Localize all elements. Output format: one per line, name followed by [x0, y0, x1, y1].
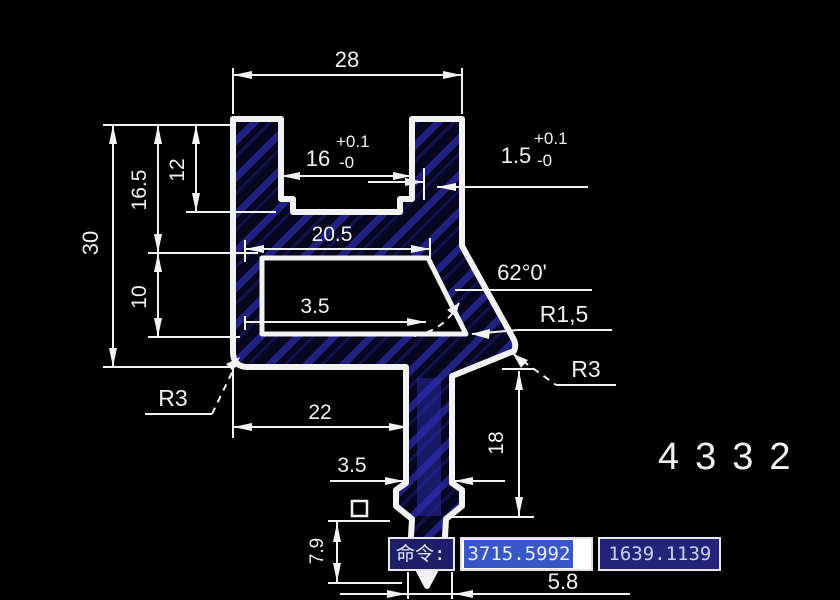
dim-16-5: 16.5	[128, 170, 151, 211]
dim-slot-tol-plus: +0.1	[336, 132, 370, 151]
dim-radius-right: R3	[571, 356, 600, 382]
dim-slot-width: 16	[306, 146, 330, 171]
dim-cavity-width: 20.5	[312, 223, 353, 246]
dim-12: 12	[166, 158, 189, 181]
leg-highlight	[417, 378, 441, 516]
cad-canvas[interactable]: 28 16 +0.1 -0 1.5 +0.1 -0 30 16.5 12 10 …	[0, 0, 840, 600]
dim-wall-upper: 3.5	[300, 295, 329, 318]
part-number: 4332	[658, 436, 807, 479]
dim-width-bottom: 22	[308, 401, 331, 424]
dim-wall-lower: 3.5	[337, 454, 366, 477]
dim-lip-tol-minus: -0	[537, 151, 552, 170]
dim-radius-small: R1,5	[540, 301, 589, 327]
dim-lip-width: 1.5	[501, 143, 532, 168]
command-prompt-label: 命令:	[388, 537, 455, 571]
dim-leg-height: 18	[485, 431, 508, 454]
dim-height-total: 30	[78, 231, 103, 255]
dim-10: 10	[128, 285, 151, 308]
dim-leg-width: 5.8	[548, 569, 579, 594]
coordinate-x-value: 3715.5992	[464, 540, 573, 568]
profile-outline	[233, 119, 515, 586]
command-bar: 命令: 3715.5992 1639.1139	[388, 537, 721, 571]
dim-tip-height: 7.9	[307, 538, 328, 564]
dim-slot-tol-minus: -0	[339, 153, 354, 172]
point-marker	[352, 501, 367, 516]
dim-lip-tol-plus: +0.1	[534, 129, 568, 148]
extrusion-profile	[233, 119, 515, 586]
dim-angle: 62°0'	[497, 260, 547, 285]
dim-radius-left: R3	[158, 385, 187, 411]
dim-width-top: 28	[335, 47, 359, 72]
coordinate-x-field[interactable]: 3715.5992	[460, 537, 593, 571]
profile-drawing: 28 16 +0.1 -0 1.5 +0.1 -0 30 16.5 12 10 …	[0, 0, 840, 600]
coordinate-y-field[interactable]: 1639.1139	[598, 537, 721, 571]
